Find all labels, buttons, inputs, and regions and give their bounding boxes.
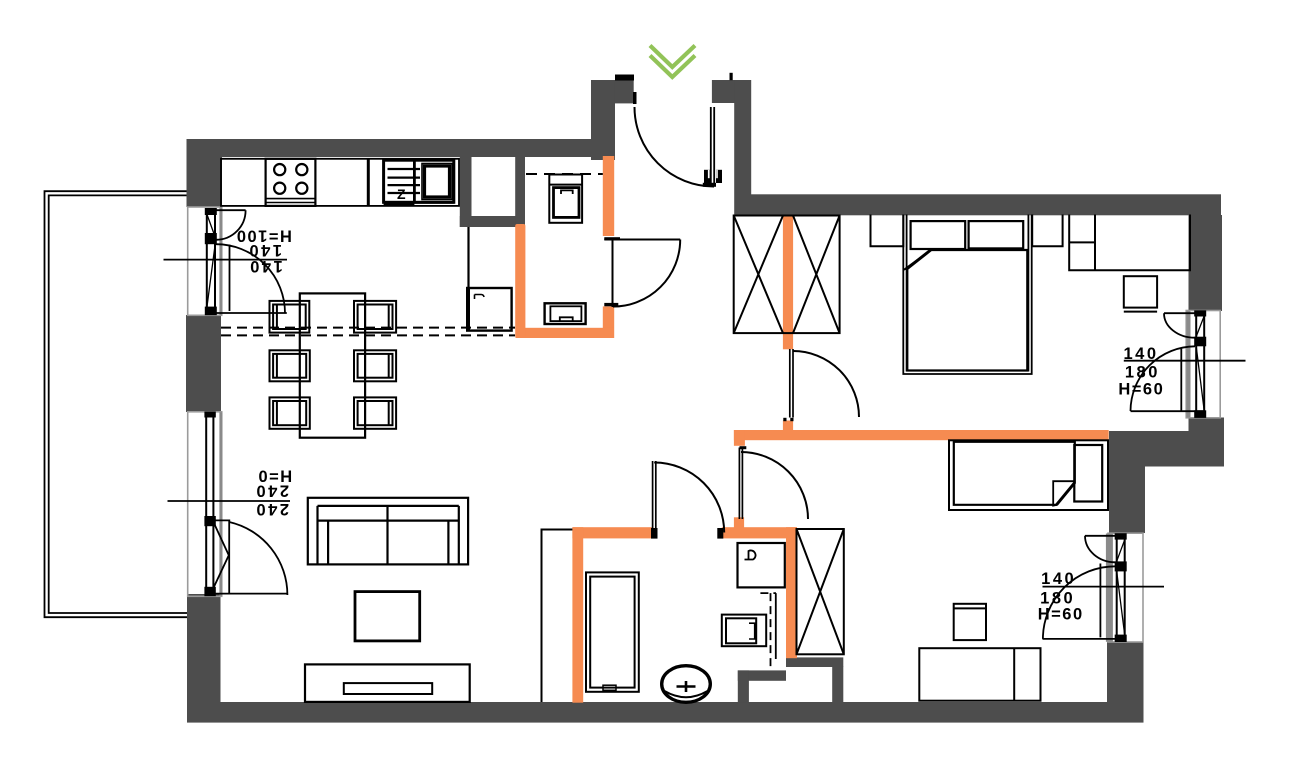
svg-text:180: 180 bbox=[1125, 364, 1160, 382]
svg-text:140: 140 bbox=[248, 257, 283, 275]
svg-text:140: 140 bbox=[247, 241, 282, 259]
svg-text:H=60: H=60 bbox=[1038, 606, 1084, 624]
svg-text:240: 240 bbox=[254, 500, 289, 518]
svg-text:240: 240 bbox=[254, 482, 289, 500]
svg-text:H=60: H=60 bbox=[1118, 381, 1164, 399]
svg-text:140: 140 bbox=[1041, 570, 1076, 588]
svg-text:140: 140 bbox=[1123, 345, 1158, 363]
svg-text:Z: Z bbox=[397, 186, 406, 202]
